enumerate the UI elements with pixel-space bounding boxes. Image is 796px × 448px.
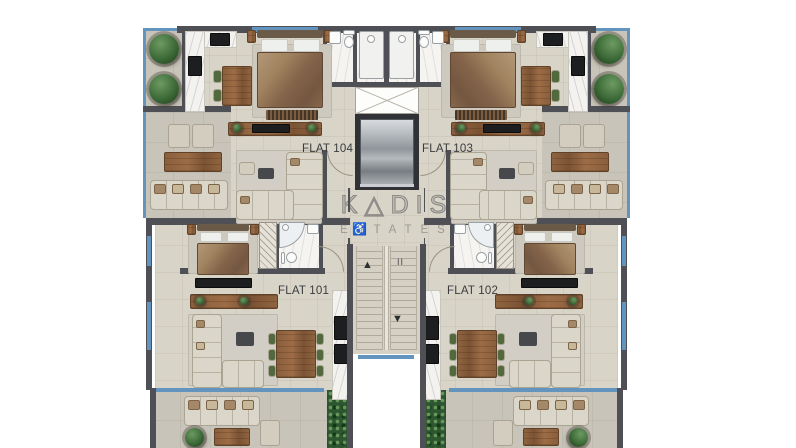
kitchen-sink: [571, 56, 585, 76]
dining-chair: [268, 333, 276, 345]
dining-chair: [316, 365, 324, 377]
bed-headboard: [524, 224, 576, 231]
flat-103-label: FLAT 103: [422, 143, 473, 155]
bed-headboard: [450, 30, 516, 38]
window-over-wall: [147, 302, 151, 350]
nightstand: [250, 224, 259, 235]
nightstand: [514, 224, 523, 235]
sofa-pillow: [473, 158, 483, 166]
coffee-table: [519, 332, 537, 346]
potted-plant: [457, 124, 465, 132]
cooktop: [543, 33, 563, 46]
floor-plan-canvas: ▲ II ▼ ♿ FLAT 104 FLAT 103 FLAT 101 FLAT…: [0, 0, 796, 448]
window-over-wall: [622, 236, 626, 266]
dining-chair: [449, 365, 457, 377]
entrance-wall: [347, 352, 353, 448]
balcony-sliding-window: [156, 388, 324, 392]
bed-pillow: [293, 39, 320, 52]
outdoor-pillow: [537, 400, 549, 410]
bed-pillow: [227, 232, 249, 242]
stair-divider: [384, 246, 389, 350]
dining-chair: [497, 349, 505, 361]
wall-balcony-west: [617, 388, 623, 448]
tv: [521, 278, 578, 288]
outdoor-pillow: [553, 184, 565, 194]
sofa-pillow: [290, 158, 300, 166]
entrance-door-glass: [358, 355, 414, 359]
outdoor-pillow: [589, 184, 601, 194]
kitchen-sink: [188, 56, 202, 76]
dining-chair: [316, 349, 324, 361]
window-over-wall: [147, 236, 151, 266]
shower-head: [398, 35, 406, 43]
balcony-plant: [185, 428, 204, 447]
bed-headboard: [197, 224, 249, 231]
armchair: [518, 162, 534, 175]
wardrobe: [496, 222, 514, 269]
wall-balcony-west: [150, 388, 156, 448]
balcony-plant: [569, 428, 588, 447]
outdoor-coffee-table: [523, 428, 559, 446]
balcony-glass-rail: [627, 112, 630, 218]
outdoor-pillow: [154, 184, 166, 194]
outdoor-pillow: [188, 400, 200, 410]
dining-chair: [268, 365, 276, 377]
stairs-level-mark: II: [397, 258, 404, 267]
tv: [483, 124, 521, 133]
bed-pillow: [200, 232, 222, 242]
toilet-bowl: [419, 36, 429, 48]
nightstand: [247, 30, 256, 43]
stair-wall: [420, 244, 426, 356]
dining-chair: [497, 333, 505, 345]
coffee-table: [236, 332, 254, 346]
stair-wall: [347, 244, 353, 356]
outdoor-pouf: [493, 420, 513, 446]
flat-104-label: FLAT 104: [302, 143, 353, 155]
outdoor-pillow: [573, 400, 585, 410]
potted-plant: [308, 124, 316, 132]
sofa: [236, 190, 294, 220]
bed-blanket: [197, 243, 249, 275]
elevator-door: [360, 184, 414, 187]
outdoor-pillow: [172, 184, 184, 194]
toilet-bowl: [286, 252, 297, 263]
bed-headboard: [257, 30, 323, 38]
potted-plant: [233, 124, 241, 132]
bed-blanket: [524, 243, 576, 275]
bed-blanket: [450, 52, 516, 108]
accessibility-icon: ♿: [352, 222, 368, 238]
potted-plant: [240, 297, 248, 305]
outdoor-table: [164, 152, 222, 172]
bathroom-sink: [432, 31, 444, 44]
outdoor-pillow: [555, 400, 567, 410]
stairs-up-arrow: ▲: [362, 260, 373, 271]
shower-head: [367, 35, 375, 43]
sofa-chaise: [222, 360, 264, 388]
dining-chair: [449, 333, 457, 345]
bed-pillow: [453, 39, 480, 52]
potted-plant: [532, 124, 540, 132]
elevator: [355, 114, 419, 190]
potted-plant: [525, 297, 533, 305]
outdoor-lounge-chair: [168, 124, 190, 148]
sofa-pillow: [240, 196, 250, 204]
wall-shower-west: [353, 28, 357, 85]
sofa-chaise: [509, 360, 551, 388]
nightstand: [517, 30, 526, 43]
outdoor-pillow: [190, 184, 202, 194]
toilet-tank: [418, 30, 430, 35]
bed-bench: [266, 110, 318, 120]
stairs-down-arrow: ▼: [392, 314, 403, 325]
balcony-glass-rail: [590, 28, 630, 31]
potted-plant: [569, 297, 577, 305]
flat-101-label: FLAT 101: [278, 285, 329, 297]
toilet-bowl: [344, 36, 354, 48]
dining-chair: [551, 70, 560, 83]
sofa-pillow: [568, 342, 577, 350]
coffee-table: [499, 168, 515, 179]
bed-blanket: [257, 52, 323, 108]
outdoor-lounge-chair: [559, 124, 581, 148]
balcony-plant: [594, 34, 624, 64]
outdoor-lounge-chair: [583, 124, 605, 148]
outdoor-pillow: [519, 400, 531, 410]
flat-102-label: FLAT 102: [447, 285, 498, 297]
balcony-sliding-window: [449, 388, 617, 392]
dining-table: [276, 330, 316, 378]
balcony-plant: [149, 34, 179, 64]
tv: [252, 124, 290, 133]
nightstand: [577, 224, 586, 235]
outdoor-pillow: [571, 184, 583, 194]
dining-chair: [268, 349, 276, 361]
bed-pillow: [524, 232, 546, 242]
dining-table: [521, 66, 551, 106]
balcony-glass-rail: [143, 112, 146, 218]
sofa: [479, 190, 537, 220]
toilet-bowl: [476, 252, 487, 263]
shower-head: [484, 224, 491, 231]
sofa-pillow: [196, 320, 205, 328]
bed-pillow: [485, 39, 512, 52]
sofa-pillow: [568, 320, 577, 328]
shower-head: [282, 224, 289, 231]
toilet-tank: [488, 252, 492, 264]
entrance-wall: [420, 352, 426, 448]
outdoor-pillow: [206, 400, 218, 410]
dining-chair: [316, 333, 324, 345]
dining-chair: [213, 70, 222, 83]
bed-bench: [455, 110, 507, 120]
wall-shower-west: [416, 28, 420, 85]
toilet-tank: [281, 252, 285, 264]
bathroom-sink: [454, 224, 466, 234]
balcony-glass-rail: [143, 28, 146, 112]
shaft: [355, 87, 419, 114]
armchair: [239, 162, 255, 175]
bathroom-sink: [329, 31, 341, 44]
bed-pillow: [551, 232, 573, 242]
dining-chair: [551, 89, 560, 102]
entrance-void: [353, 354, 421, 448]
outdoor-pillow: [242, 400, 254, 410]
outdoor-lounge-chair: [192, 124, 214, 148]
toilet-tank: [343, 30, 355, 35]
potted-plant: [196, 297, 204, 305]
dining-chair: [449, 349, 457, 361]
coffee-table: [258, 168, 274, 179]
outdoor-pillow: [607, 184, 619, 194]
tv: [195, 278, 252, 288]
outdoor-pillow: [224, 400, 236, 410]
sofa-pillow: [196, 342, 205, 350]
bathroom-sink: [307, 224, 319, 234]
nightstand: [187, 224, 196, 235]
balcony-glass-rail: [627, 28, 630, 112]
outdoor-pouf: [260, 420, 280, 446]
balcony-plant: [149, 74, 179, 104]
cooktop: [210, 33, 230, 46]
outdoor-pillow: [208, 184, 220, 194]
dining-table: [457, 330, 497, 378]
dining-table: [222, 66, 252, 106]
wardrobe: [259, 222, 277, 269]
outdoor-coffee-table: [214, 428, 250, 446]
dining-chair: [497, 365, 505, 377]
bed-pillow: [261, 39, 288, 52]
window-over-wall: [622, 302, 626, 350]
dining-chair: [213, 89, 222, 102]
balcony-plant: [594, 74, 624, 104]
sofa-pillow: [523, 196, 533, 204]
outdoor-table: [551, 152, 609, 172]
